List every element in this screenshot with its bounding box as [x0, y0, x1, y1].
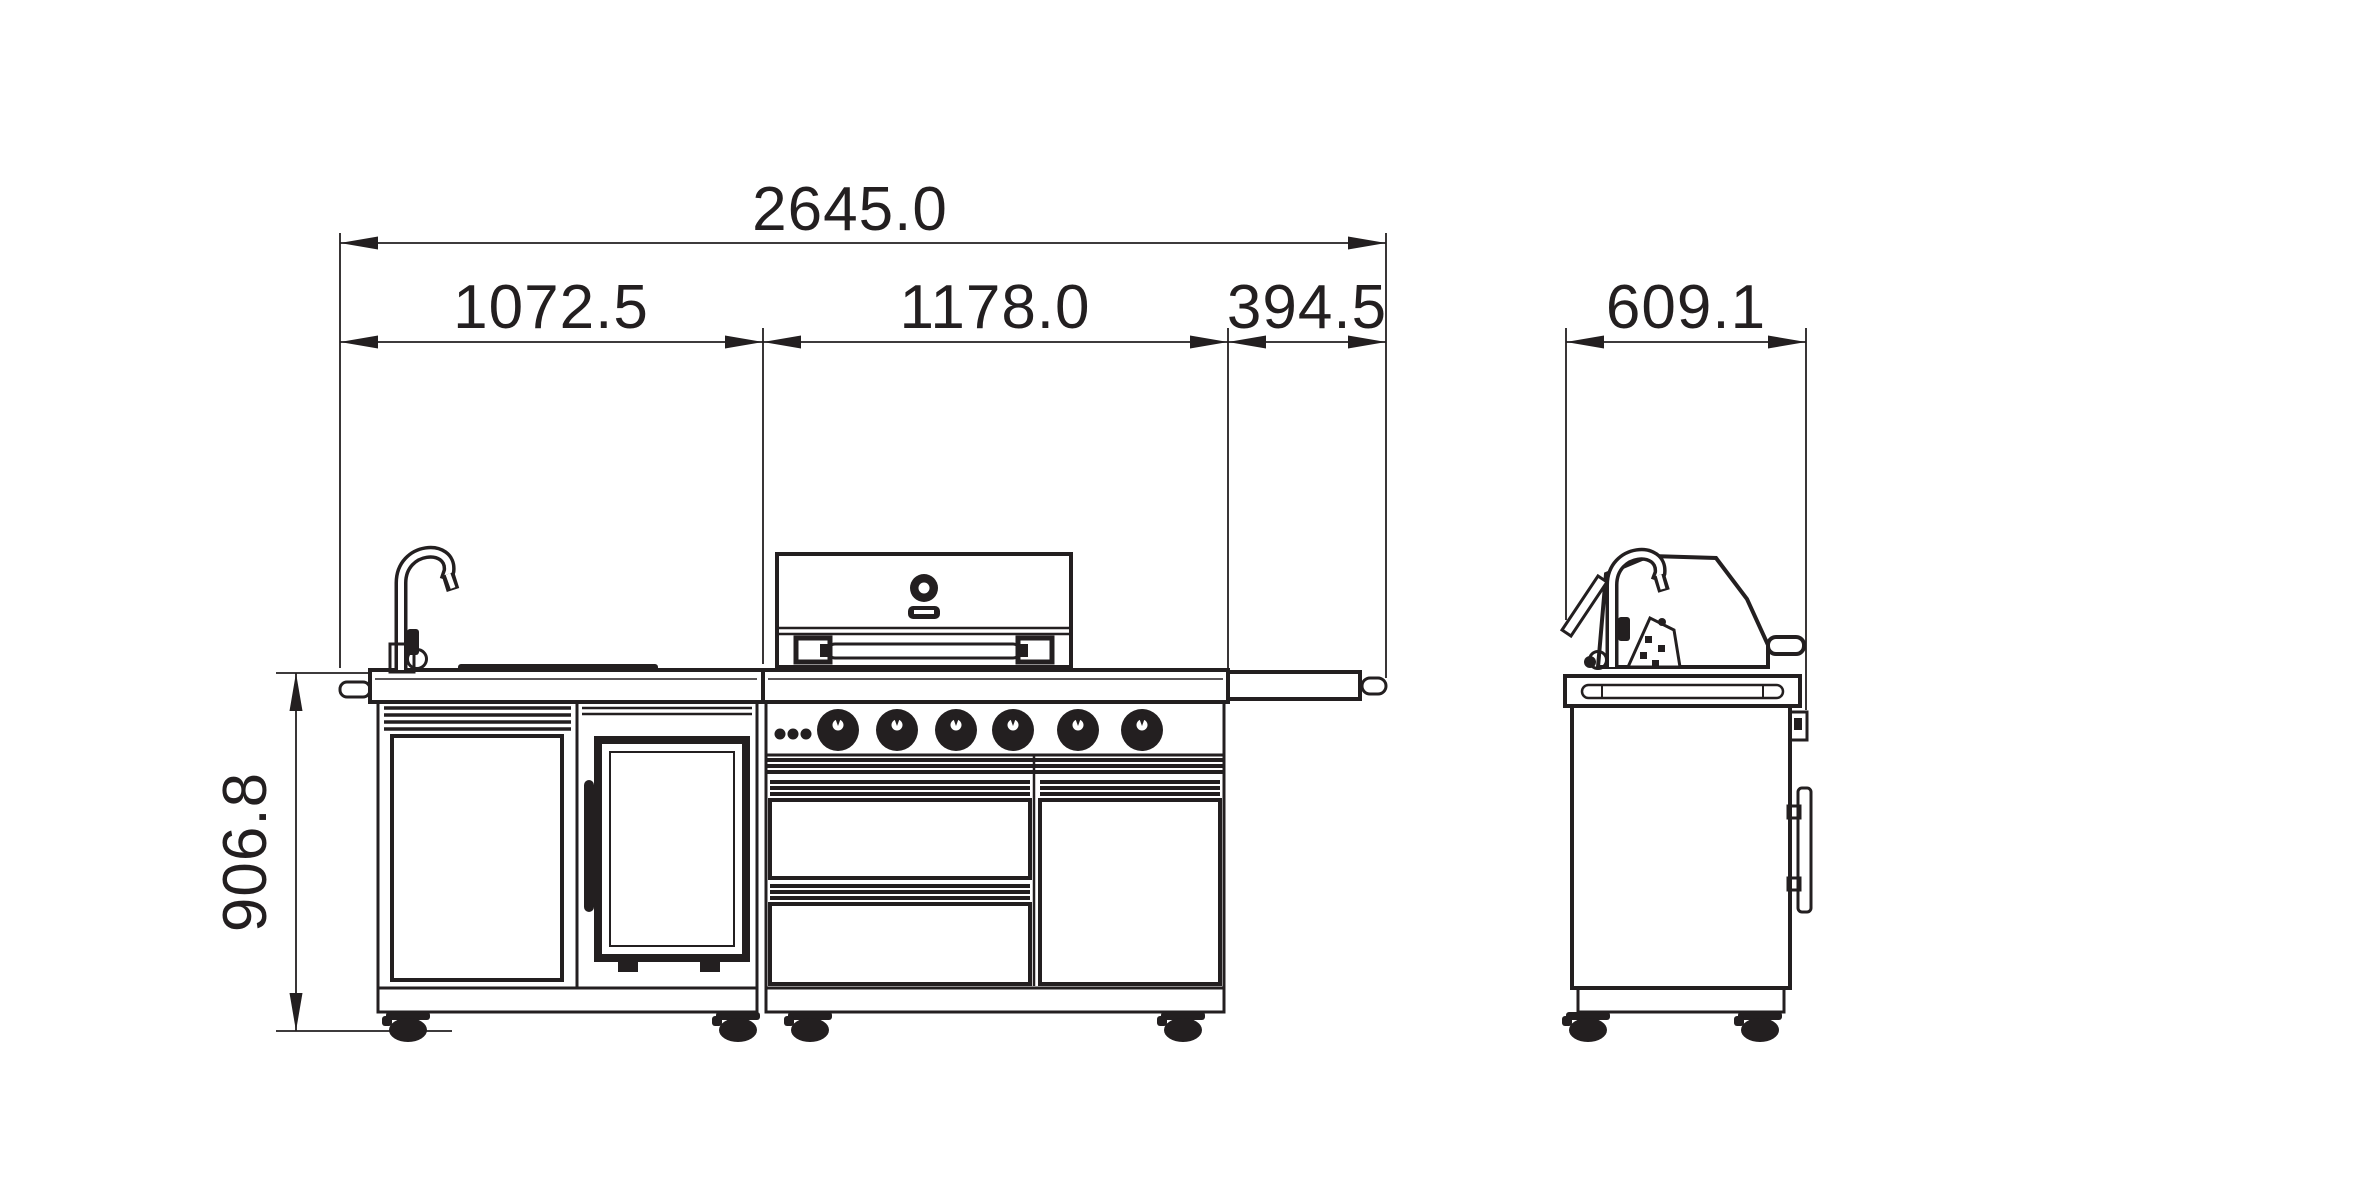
temperature-gauge-face [919, 583, 930, 594]
outdoor-kitchen-dimension-drawing: 2645.0 1072.5 1178.0 394.5 609.1 906.8 [0, 0, 2362, 1181]
side-view [1562, 554, 1811, 1042]
fridge-foot [700, 962, 720, 972]
burner-knob [992, 709, 1034, 751]
fridge-handle [584, 780, 594, 912]
sink-module [340, 664, 763, 1042]
dim-side-shelf-label: 394.5 [1227, 273, 1387, 342]
drawer-upper [770, 800, 1030, 878]
grill-module [763, 554, 1228, 1042]
burner-knob [876, 709, 918, 751]
sink-module-base-rail [378, 988, 757, 1012]
fridge-door-frame [598, 740, 746, 958]
caster-wheel [784, 1012, 832, 1042]
cabinet-door [392, 736, 562, 980]
dim-overall-width-label: 2645.0 [752, 175, 948, 244]
caster-wheel [1562, 1012, 1610, 1042]
fridge [582, 708, 752, 972]
dim-grill-module-label: 1178.0 [899, 273, 1090, 342]
grill-module-base-rail [766, 988, 1224, 1012]
fridge-foot [618, 962, 638, 972]
sink-countertop [370, 670, 763, 702]
bracket-dot [1640, 652, 1647, 659]
bracket-dot [1658, 645, 1665, 652]
sink-rim [458, 664, 658, 671]
side-countertop [1565, 676, 1800, 706]
side-faucet-lever [1618, 617, 1630, 641]
burner-knob [817, 709, 859, 751]
side-base-rail [1578, 988, 1784, 1012]
dim-height-label: 906.8 [211, 772, 280, 932]
hood-profile-shell [1598, 556, 1768, 667]
side-shelf-top [1228, 672, 1360, 699]
caster-wheel [1157, 1012, 1205, 1042]
caster-wheel [382, 1012, 430, 1042]
side-cabinet-panel [1572, 706, 1790, 988]
bracket-dot [1645, 636, 1652, 643]
counter-left-handle [340, 682, 370, 697]
grill-countertop [763, 670, 1228, 702]
burner-knob [935, 709, 977, 751]
front-view [340, 552, 1386, 1042]
side-shelf-knob [1362, 678, 1386, 694]
left-door-vent-slats [384, 708, 571, 729]
drawing-canvas: 2645.0 1072.5 1178.0 394.5 609.1 906.8 [0, 0, 2362, 1181]
igniter-dots [775, 729, 812, 740]
faucet [390, 552, 453, 672]
caster-wheel [712, 1012, 760, 1042]
control-panel [766, 709, 1224, 755]
side-shelf [1228, 672, 1386, 699]
side-hood-handle [1768, 637, 1804, 654]
burner-knob [1121, 709, 1163, 751]
caster-wheel [1734, 1012, 1782, 1042]
bracket-dot [1652, 660, 1659, 667]
bracket-dot [1658, 618, 1666, 626]
drawer-lower [770, 904, 1030, 984]
burner-knob [1057, 709, 1099, 751]
dim-depth-label: 609.1 [1606, 273, 1766, 342]
cart-door [1040, 800, 1220, 984]
dim-left-module-label: 1072.5 [453, 273, 649, 342]
side-faucet-fitting [1584, 656, 1596, 668]
grill-hood [777, 554, 1071, 667]
hood-badge-line [914, 610, 934, 614]
hinge-pin [1794, 718, 1802, 730]
